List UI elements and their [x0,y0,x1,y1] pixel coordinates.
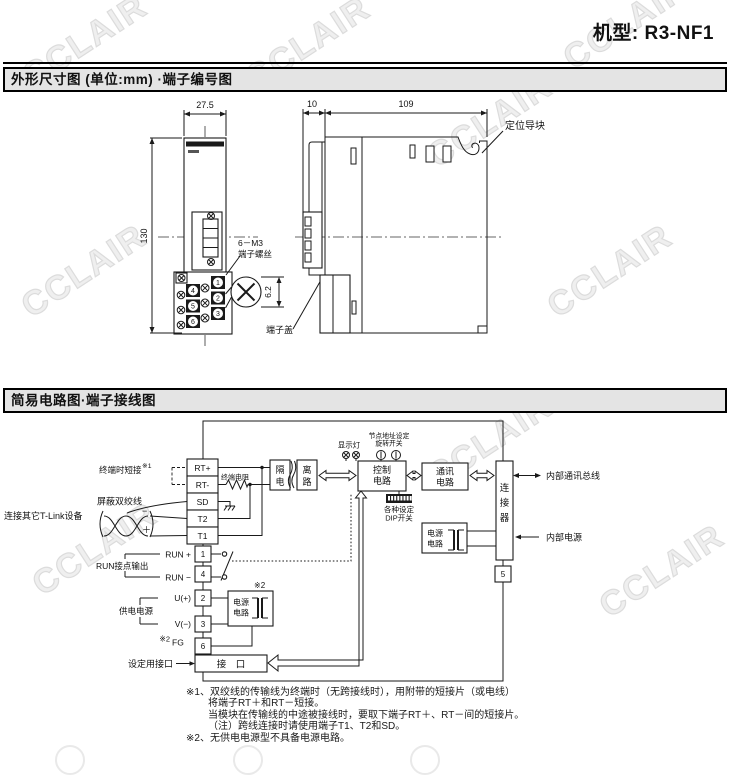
circuit-figure: RT+ RT- SD T2 T1 1 4 2 3 6 5 隔 电 离 路 控制 … [0,413,730,687]
shielded-pair-label: 屏蔽双绞线 [97,496,142,507]
bus-arrows: 内部通讯总线 内部电源 [513,470,600,543]
dip-switch-icon [386,494,412,503]
dim-109: 109 [398,99,413,109]
iso-char-4: 路 [302,476,311,487]
connector-char-2: 接 [500,497,510,509]
section-header-dimensions: 外形尺寸图 (单位:mm) ·端子编号图 [3,67,727,92]
terminal-t1: T1 [198,531,208,541]
terminating-resistor-label: 终端电阻 [221,473,249,482]
note-1-line-1: ※1、双绞线的传输线为终端时（无跨接线时），用附带的短接片（或电线） [186,687,726,698]
terminal-t2: T2 [198,514,208,524]
terminal-3: 3 [216,311,220,318]
connector-char-1: 连 [500,482,510,494]
supply-power-label: 供电电源 [119,606,154,616]
setting-interface: 接 口 设定用接口 [128,655,267,672]
terminal-4: 4 [191,288,195,295]
terminal-stack: RT+ RT- SD T2 T1 [187,459,218,544]
v-minus-label: V(−) [175,619,191,629]
iso-char-3: 离 [302,464,311,475]
screw-detail: 6－M3 端子螺丝 6.2 [226,238,285,308]
dimension-figure: 1 2 3 4 5 6 6－M3 端子螺丝 6.2 [0,96,730,358]
rotary-label-1: 节点地址设定 [369,431,410,440]
front-connector-block [192,212,222,270]
terminal-sd: SD [197,497,209,507]
terminal-no-3: 3 [201,620,206,629]
dip-label-2: DIP开关 [385,513,413,523]
watermark-circle [410,745,440,775]
terminal-5: 5 [191,304,195,311]
terminal-rt-plus: RT+ [194,463,210,473]
rotary-label-2: 旋转开关 [375,439,402,448]
pair-plus: ＋ [142,525,151,535]
note-1-line-2: 将端子RT＋和RT－短接。 [186,698,726,709]
terminal-1: 1 [216,280,220,287]
run-contact-output-label: RUN接点输出 [96,561,148,571]
terminal-cover [320,275,350,333]
footnotes: ※1、双绞线的传输线为终端时（无跨接线时），用附带的短接片（或电线） 将端子RT… [186,687,726,744]
terminal-no-1: 1 [201,550,206,559]
fg-label: FG [172,638,184,648]
watermark-circle [55,745,85,775]
header-rule [3,62,727,64]
hollow-arrows [268,471,494,672]
terminal-no-2: 2 [201,594,206,603]
comm-label-1: 通讯 [436,467,454,477]
control-label-2: 电路 [373,475,391,486]
terminal-2: 2 [216,296,220,303]
screw-spec-label2: 端子螺丝 [238,249,273,259]
connector-char-3: 器 [500,513,510,524]
run-plus-label: RUN + [165,550,191,560]
front-label-marks [188,150,199,153]
u-plus-label: U(+) [174,593,191,603]
control-label-1: 控制 [373,464,391,475]
power-right-label-1: 电源 [427,528,443,538]
dip-label-1: 各种设定 [384,504,414,514]
dim-27-5: 27.5 [196,100,214,110]
power-circuit-right: 电源 电路 [422,523,467,553]
iso-char-1: 隔 [275,465,284,475]
power-left-label-2: 电路 [233,608,249,618]
run-minus-label: RUN − [165,573,191,583]
terminal-6: 6 [191,319,195,326]
comm-label-2: 电路 [436,477,454,488]
isolation-circuit: 隔 电 离 路 [270,460,317,490]
internal-bus-label: 内部通讯总线 [546,470,600,481]
power-circuit-left: 电源 电路 ※2 [228,581,273,626]
side-dimensions: 10 109 [303,99,487,212]
positioning-guide-label: 定位导块 [505,119,545,132]
power-left-label-1: 电源 [233,597,249,607]
front-view: 1 2 3 4 5 6 6－M3 端子螺丝 6.2 [139,100,321,348]
terminal-no-5: 5 [501,570,506,579]
section-header-circuit: 简易电路图·端子接线图 [3,388,727,413]
page-title-model: 机型: R3-NF1 [593,18,714,45]
terminal-no-6: 6 [201,642,206,651]
side-view: 10 109 定位导块 [295,99,545,333]
dim-10: 10 [307,99,317,109]
dim-6-2: 6.2 [263,286,273,298]
termination-note-mark: ※1 [142,463,152,470]
terminal-cover-label: 端子盖 [266,324,293,335]
note-1-line-3: 当模块在传输线的中途被接线时，要取下端子RT＋、RT－间的短接片。 [186,710,726,721]
dim-130: 130 [139,228,149,243]
setting-interface-label: 设定用接口 [128,658,173,669]
note-1-line-4: （注）跨线连接时请使用端子T1、T2和SD。 [186,721,726,732]
rotary-switch-icon [377,451,401,462]
iso-char-2: 电 [275,476,284,487]
vents [351,145,487,333]
comm-circuit: 通讯 电路 [422,463,468,490]
interface-box-label: 接 口 [217,659,246,671]
internal-power-label: 内部电源 [546,532,582,543]
display-lamp-label: 显示灯 [338,440,361,450]
watermark-circle [233,745,263,775]
positioning-guide-hook [470,143,479,154]
power-note-mark: ※2 [254,581,266,590]
power-right-label-2: 电路 [427,539,443,549]
termination-short-label: 终端时短接 [99,465,142,475]
tlink-label: 连接其它T-Link设备 [4,510,83,521]
note-2-line-1: ※2、无供电电源型不具备电源电路。 [186,733,726,744]
screw-spec-label: 6－M3 [238,238,263,248]
terminal-rt-minus: RT- [196,480,210,490]
fg-note-mark: ※2 [160,635,170,644]
front-terminal-block: 1 2 3 4 5 6 [174,272,232,334]
terminal-no-4: 4 [201,570,206,579]
connector: 连 接 器 [496,461,513,560]
pair-minus: − [142,506,147,516]
lamp-icon [343,452,360,462]
